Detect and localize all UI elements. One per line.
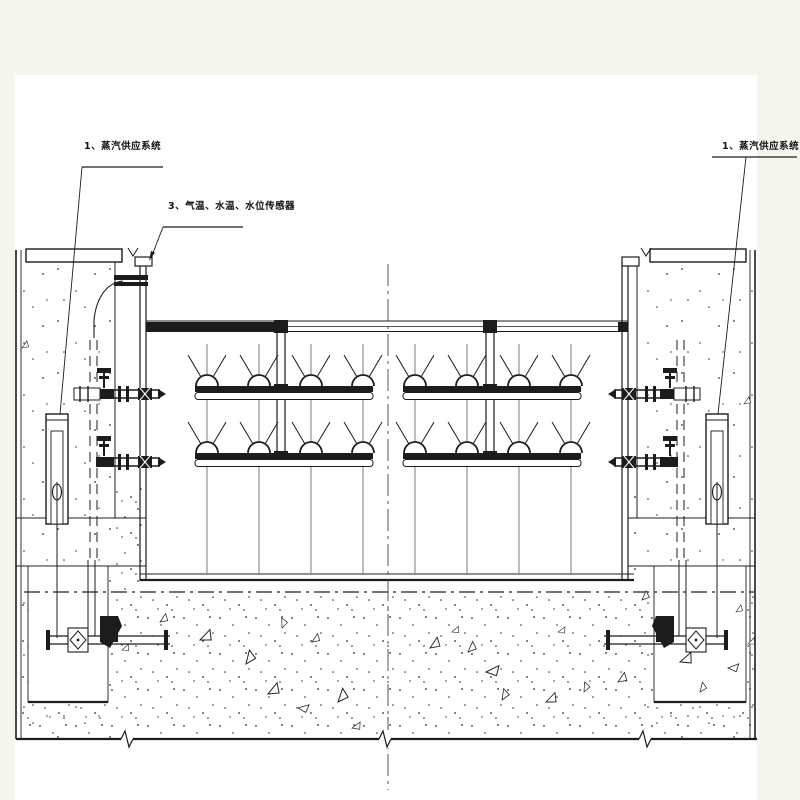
- drawing-sheet: 1、蒸汽供应系统 3、气温、水温、水位传感器 1、蒸汽供应系统: [0, 0, 800, 800]
- left-level-mark: [128, 248, 138, 256]
- section-drawing: [0, 0, 800, 800]
- manifold-row2-left: [195, 453, 373, 467]
- label-sensors: 3、气温、水温、水位传感器: [168, 198, 295, 212]
- manifold-row1-left: [195, 386, 373, 400]
- left-gap-fill: [115, 488, 142, 594]
- right-pier-cap: [650, 249, 746, 262]
- manifold-row2-right: [403, 453, 581, 467]
- label-steam-supply-right: 1、蒸汽供应系统: [722, 138, 799, 152]
- manifold-row1-right: [403, 386, 581, 400]
- label-steam-supply-left: 1、蒸汽供应系统: [84, 138, 161, 152]
- tank-shell: [94, 257, 639, 581]
- sensor-junction: [114, 275, 148, 280]
- tank-right-wall-cap: [622, 257, 639, 266]
- ground-line: [16, 730, 757, 748]
- right-gap-fill: [630, 488, 637, 594]
- floor-fill: [22, 594, 755, 738]
- tank-left-wall-cap: [135, 257, 152, 266]
